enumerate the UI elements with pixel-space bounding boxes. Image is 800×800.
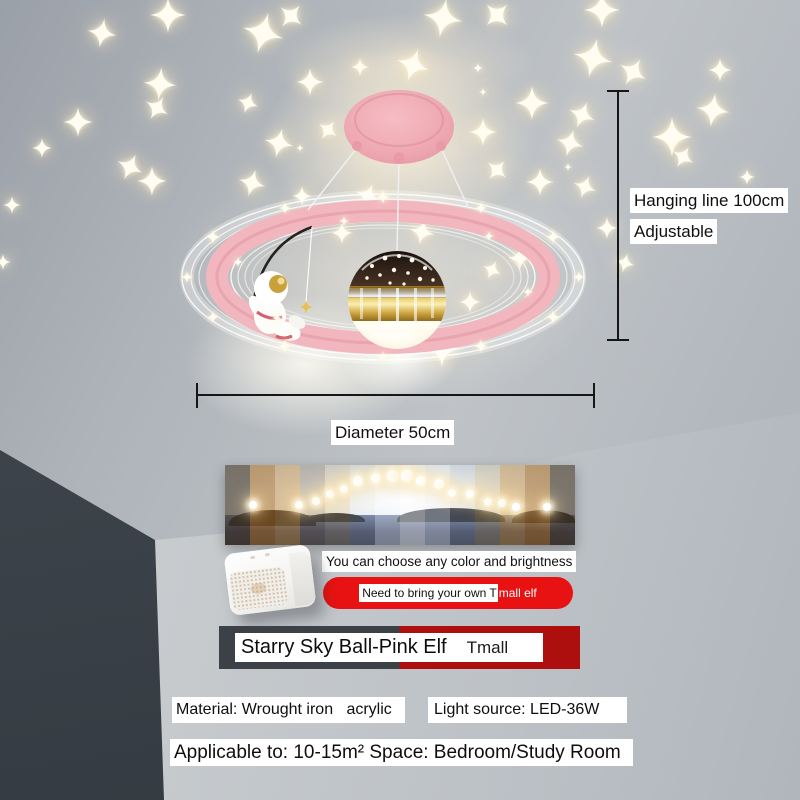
- lamp-dot: [353, 476, 363, 486]
- star-sparkle: [85, 16, 120, 51]
- lamp-dot: [371, 473, 381, 483]
- star-sparkle: [142, 66, 179, 103]
- diameter-label: Diameter 50cm: [331, 420, 454, 445]
- lamp-dot: [512, 503, 520, 511]
- lamp-dot: [434, 479, 444, 489]
- product-title-box: Starry Sky Ball-Pink Elf Tmall: [235, 633, 543, 662]
- lamp-dot: [416, 476, 426, 486]
- lamp-glow: [325, 295, 475, 410]
- color-stripe: [425, 465, 450, 545]
- color-options-banner: [225, 465, 575, 545]
- lamp-dot: [498, 499, 506, 507]
- tmall-elf-note: Need to bring your own Tmall elf: [323, 577, 573, 609]
- color-stripe: [325, 465, 350, 545]
- star-sparkle: [139, 90, 175, 126]
- lamp-dot: [249, 501, 257, 509]
- star-sparkle: [584, 0, 620, 28]
- brand-label: Tmall: [467, 638, 509, 658]
- note-text-black: Need to bring your own T: [359, 584, 498, 602]
- star-sparkle: [63, 107, 93, 137]
- lamp-dot: [295, 501, 303, 509]
- speaker-grille: [229, 566, 288, 611]
- banner-caption: You can choose any color and brightness: [322, 551, 576, 572]
- applicable-spec: Applicable to: 10-15m² Space: Bedroom/St…: [170, 739, 633, 766]
- star-sparkle: [739, 169, 755, 185]
- star-sparkle: [3, 196, 21, 214]
- star-sparkle: [0, 254, 11, 270]
- speaker-button: [265, 553, 270, 557]
- speaker-button: [250, 556, 255, 560]
- product-image: Hanging line 100cm Adjustable Diameter 5…: [0, 0, 800, 800]
- lamp-glow: [210, 10, 590, 270]
- lamp-dot: [543, 503, 551, 511]
- lamp-dot: [484, 498, 492, 506]
- star-sparkle: [613, 52, 654, 93]
- measure-line-vertical: [617, 91, 619, 340]
- adjustable-label: Adjustable: [630, 219, 717, 244]
- star-sparkle: [32, 138, 52, 158]
- lamp-dot: [340, 485, 348, 493]
- product-name: Starry Sky Ball-Pink Elf: [241, 636, 447, 659]
- smart-speaker: [224, 544, 317, 616]
- star-sparkle: [694, 91, 732, 129]
- measure-line-horizontal: [197, 394, 594, 396]
- star-sparkle: [667, 141, 700, 174]
- color-stripe: [225, 465, 250, 545]
- lamp-dot: [466, 490, 474, 498]
- star-sparkle: [652, 117, 692, 157]
- color-stripe: [300, 465, 325, 545]
- star-sparkle: [150, 0, 186, 33]
- hanging-line-label: Hanging line 100cm: [630, 188, 788, 213]
- measure-cap-bottom: [607, 339, 629, 341]
- star-sparkle: [569, 34, 616, 81]
- star-sparkle: [708, 58, 732, 82]
- color-temperature-stripes: [225, 465, 575, 545]
- star-sparkle: [111, 148, 148, 185]
- light-source-spec: Light source: LED-36W: [428, 697, 627, 723]
- product-title-bar: Starry Sky Ball-Pink Elf Tmall: [219, 626, 580, 669]
- note-text-white: mall elf: [498, 586, 537, 600]
- color-stripe: [550, 465, 575, 545]
- lamp-dot: [326, 490, 334, 498]
- material-spec: Material: Wrought iron acrylic: [172, 697, 405, 723]
- lamp-dot: [312, 497, 320, 505]
- color-stripe: [450, 465, 475, 545]
- measure-tick-right: [593, 383, 595, 408]
